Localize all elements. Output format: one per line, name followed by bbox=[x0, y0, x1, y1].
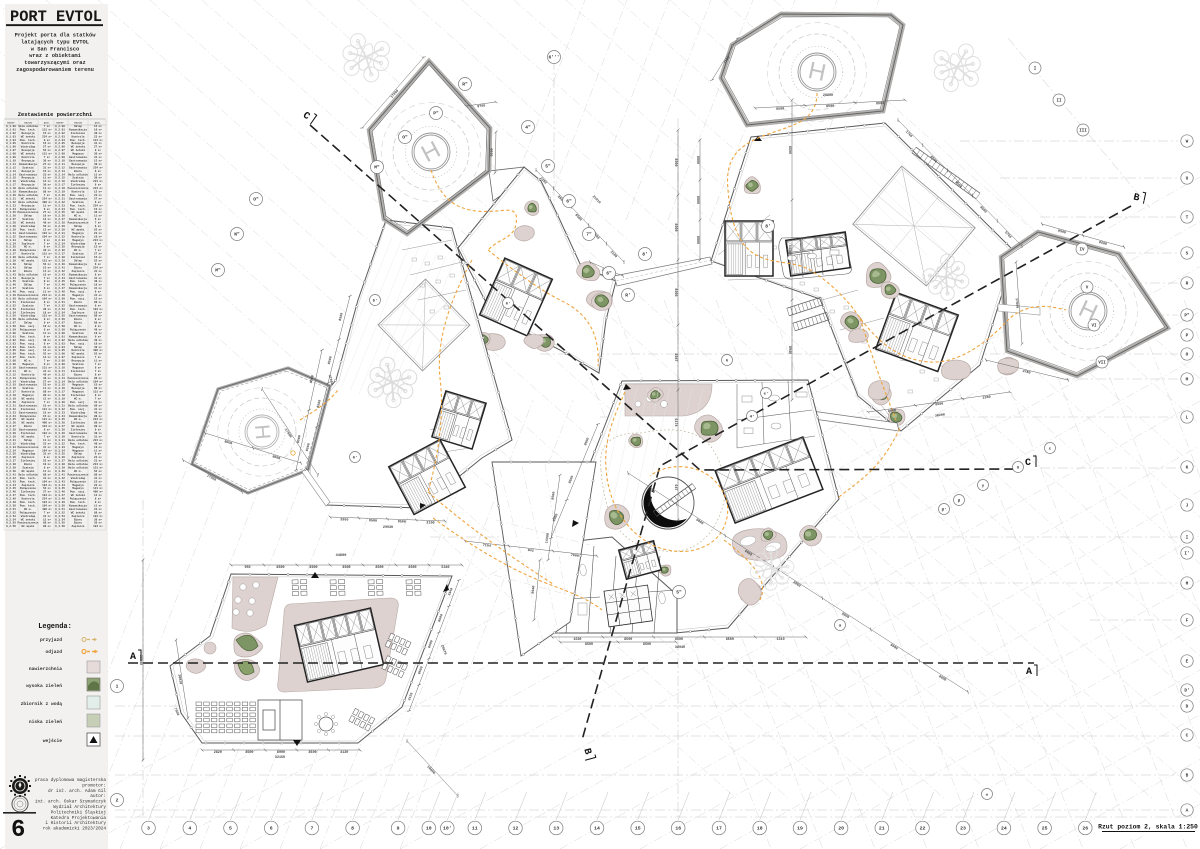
svg-text:6 m²: 6 m² bbox=[95, 169, 102, 173]
svg-text:52 m²: 52 m² bbox=[94, 352, 102, 356]
svg-text:18 m²: 18 m² bbox=[94, 445, 102, 449]
svg-text:3: 3 bbox=[147, 826, 150, 832]
svg-text:48 m²: 48 m² bbox=[94, 345, 102, 349]
svg-text:7": 7" bbox=[586, 232, 592, 238]
svg-text:Hala odlotów: Hala odlotów bbox=[18, 317, 38, 321]
svg-text:19: 19 bbox=[797, 826, 803, 832]
svg-text:8 m²: 8 m² bbox=[44, 466, 51, 470]
svg-text:11 m²: 11 m² bbox=[43, 331, 51, 335]
svg-text:18 m²: 18 m² bbox=[94, 234, 102, 238]
svg-text:Sklep: Sklep bbox=[74, 452, 82, 456]
svg-text:zbiornik z wodą: zbiornik z wodą bbox=[21, 701, 63, 707]
svg-text:131 m²: 131 m² bbox=[93, 466, 103, 470]
svg-text:6 m²: 6 m² bbox=[44, 207, 51, 211]
svg-text:12 m²: 12 m² bbox=[94, 493, 102, 497]
svg-text:88 m²: 88 m² bbox=[43, 393, 51, 397]
svg-text:8 m²: 8 m² bbox=[95, 497, 102, 501]
svg-text:31 m²: 31 m² bbox=[43, 445, 51, 449]
svg-text:A: A bbox=[1026, 667, 1032, 678]
svg-text:11 m²: 11 m² bbox=[94, 504, 102, 508]
svg-text:36 m²: 36 m² bbox=[43, 248, 51, 252]
svg-text:Hala odlotów: Hala odlotów bbox=[68, 459, 88, 463]
svg-text:7 m²: 7 m² bbox=[95, 397, 102, 401]
svg-text:27 m²: 27 m² bbox=[94, 196, 102, 200]
svg-text:36 m²: 36 m² bbox=[94, 210, 102, 214]
svg-text:18 m²: 18 m² bbox=[94, 341, 102, 345]
svg-text:Wiatrołap: Wiatrołap bbox=[71, 476, 86, 480]
svg-text:e': e' bbox=[764, 391, 769, 396]
svg-text:Kontrola: Kontrola bbox=[22, 141, 35, 145]
svg-text:131 m²: 131 m² bbox=[42, 127, 52, 131]
svg-text:Pom. tech.: Pom. tech. bbox=[20, 138, 36, 142]
svg-text:8500: 8500 bbox=[491, 148, 495, 156]
svg-text:5340: 5340 bbox=[441, 566, 449, 570]
svg-text:9 m²: 9 m² bbox=[95, 241, 102, 245]
svg-text:23 m²: 23 m² bbox=[94, 231, 102, 235]
svg-text:L: L bbox=[1186, 416, 1189, 421]
svg-text:6 m²: 6 m² bbox=[95, 200, 102, 204]
svg-text:8 m²: 8 m² bbox=[44, 300, 51, 304]
svg-text:6': 6' bbox=[353, 455, 358, 460]
svg-text:32150: 32150 bbox=[275, 756, 285, 760]
svg-text:WC żeński: WC żeński bbox=[21, 134, 36, 138]
svg-text:9 m²: 9 m² bbox=[44, 238, 51, 242]
svg-text:6 m²: 6 m² bbox=[95, 183, 102, 187]
svg-text:48 m²: 48 m² bbox=[94, 410, 102, 414]
svg-text:9 m²: 9 m² bbox=[44, 321, 51, 325]
svg-text:88 m²: 88 m² bbox=[94, 424, 102, 428]
svg-text:31 m²: 31 m² bbox=[43, 452, 51, 456]
svg-text:Biuro: Biuro bbox=[74, 317, 82, 321]
svg-text:88 m²: 88 m² bbox=[94, 321, 102, 325]
svg-text:Zaplecze: Zaplecze bbox=[72, 310, 85, 314]
svg-text:Wydział Architektury: Wydział Architektury bbox=[53, 805, 106, 810]
svg-text:Pom. tech.: Pom. tech. bbox=[20, 352, 36, 356]
svg-text:Zaplecze: Zaplecze bbox=[22, 455, 35, 459]
svg-text:Sklep: Sklep bbox=[24, 321, 32, 325]
svg-text:Zieleniec: Zieleniec bbox=[21, 431, 36, 435]
svg-text:Pom. socj.: Pom. socj. bbox=[70, 290, 86, 294]
svg-text:PORT EVTOL: PORT EVTOL bbox=[10, 8, 102, 26]
svg-text:Wiatrołap: Wiatrołap bbox=[71, 179, 86, 183]
svg-text:8500: 8500 bbox=[375, 566, 383, 570]
svg-text:27 m²: 27 m² bbox=[94, 145, 102, 149]
svg-text:Komunikacja: Komunikacja bbox=[69, 334, 87, 338]
svg-text:31 m²: 31 m² bbox=[43, 369, 51, 373]
svg-text:224 m²: 224 m² bbox=[42, 134, 52, 138]
svg-text:zagospodarowaniem terenu: zagospodarowaniem terenu bbox=[16, 67, 94, 73]
svg-text:Komunikacja: Komunikacja bbox=[69, 414, 87, 418]
svg-text:Wiatrołap: Wiatrołap bbox=[21, 514, 36, 518]
svg-text:15 m²: 15 m² bbox=[94, 479, 102, 483]
svg-text:18 m²: 18 m² bbox=[43, 324, 51, 328]
svg-text:Hala odlotów: Hala odlotów bbox=[68, 438, 88, 442]
svg-text:Biuro: Biuro bbox=[74, 169, 82, 173]
svg-text:6174: 6174 bbox=[673, 418, 677, 426]
svg-text:1630: 1630 bbox=[573, 638, 581, 642]
svg-text:9 m²: 9 m² bbox=[44, 138, 51, 142]
svg-text:23 m²: 23 m² bbox=[94, 507, 102, 511]
svg-text:8 m²: 8 m² bbox=[95, 393, 102, 397]
svg-text:52 m²: 52 m² bbox=[94, 469, 102, 473]
svg-text:6': 6' bbox=[506, 301, 511, 306]
svg-text:Recepcja: Recepcja bbox=[72, 141, 85, 145]
svg-text:Katedra Projektowania: Katedra Projektowania bbox=[51, 816, 107, 821]
svg-text:Wiatrołap: Wiatrołap bbox=[21, 452, 36, 456]
svg-text:Kontrola: Kontrola bbox=[22, 372, 35, 376]
svg-text:H: H bbox=[1186, 582, 1189, 587]
svg-text:w San Francisco: w San Francisco bbox=[31, 46, 80, 52]
svg-text:Zaplecze: Zaplecze bbox=[72, 269, 85, 273]
svg-text:88 m²: 88 m² bbox=[94, 510, 102, 514]
svg-text:praca dyplomowa magisterska: praca dyplomowa magisterska bbox=[35, 778, 107, 783]
svg-text:odjazd: odjazd bbox=[45, 649, 62, 655]
svg-text:przyjazd: przyjazd bbox=[40, 637, 62, 643]
svg-text:27 m²: 27 m² bbox=[94, 252, 102, 256]
svg-text:18 m²: 18 m² bbox=[43, 214, 51, 218]
svg-text:Recepcja: Recepcja bbox=[22, 176, 35, 180]
svg-text:I: I bbox=[1186, 536, 1189, 541]
svg-text:WC żeński: WC żeński bbox=[21, 517, 36, 521]
svg-text:6 m²: 6 m² bbox=[44, 245, 51, 249]
svg-text:104 m²: 104 m² bbox=[42, 234, 52, 238]
svg-text:WC męski: WC męski bbox=[22, 397, 35, 401]
svg-text:Legenda:: Legenda: bbox=[38, 623, 72, 631]
svg-text:Zaplecze: Zaplecze bbox=[72, 514, 85, 518]
svg-text:Projekt porta dla statków: Projekt porta dla statków bbox=[15, 33, 97, 39]
svg-text:Hala odlotów: Hala odlotów bbox=[18, 297, 38, 301]
svg-text:Recepcja: Recepcja bbox=[22, 159, 35, 163]
svg-text:WC męski: WC męski bbox=[72, 352, 85, 356]
svg-text:6 m²: 6 m² bbox=[95, 290, 102, 294]
svg-text:14380: 14380 bbox=[787, 245, 791, 255]
svg-text:Pom. tech.: Pom. tech. bbox=[20, 345, 36, 349]
svg-text:842: 842 bbox=[527, 549, 534, 554]
svg-text:104 m²: 104 m² bbox=[93, 307, 103, 311]
svg-text:E: E bbox=[1186, 660, 1189, 665]
svg-text:promotor:: promotor: bbox=[82, 783, 106, 788]
svg-text:Kontrola: Kontrola bbox=[72, 134, 85, 138]
svg-text:15 m²: 15 m² bbox=[94, 124, 102, 128]
svg-text:Pom. socj.: Pom. socj. bbox=[70, 341, 86, 345]
svg-text:15 m²: 15 m² bbox=[43, 169, 51, 173]
svg-text:52 m²: 52 m² bbox=[43, 352, 51, 356]
svg-text:Szatnia: Szatnia bbox=[22, 279, 34, 283]
svg-text:Komunikacja: Komunikacja bbox=[69, 286, 87, 290]
svg-text:7 m²: 7 m² bbox=[95, 248, 102, 252]
svg-text:9 m²: 9 m² bbox=[44, 317, 51, 321]
svg-text:8500: 8500 bbox=[309, 566, 317, 570]
svg-text:8500: 8500 bbox=[776, 107, 784, 111]
svg-text:Połączenie: Połączenie bbox=[20, 486, 37, 490]
svg-text:Połączenie: Połączenie bbox=[20, 510, 37, 514]
svg-text:M": M" bbox=[374, 165, 380, 171]
svg-text:52 m²: 52 m² bbox=[43, 486, 51, 490]
svg-text:11 m²: 11 m² bbox=[43, 469, 51, 473]
svg-text:7 m²: 7 m² bbox=[44, 241, 51, 245]
svg-text:wysoka zieleń: wysoka zieleń bbox=[26, 683, 62, 689]
svg-text:7 m²: 7 m² bbox=[44, 276, 51, 280]
svg-text:Sklep: Sklep bbox=[24, 238, 32, 242]
svg-text:1310: 1310 bbox=[777, 638, 785, 642]
svg-text:O": O" bbox=[253, 197, 259, 203]
svg-text:Komunikacja: Komunikacja bbox=[19, 162, 37, 166]
svg-text:7 m²: 7 m² bbox=[95, 362, 102, 366]
svg-text:Hala odlotów: Hala odlotów bbox=[18, 124, 38, 128]
svg-text:8000: 8000 bbox=[673, 223, 677, 231]
svg-text:W: W bbox=[1186, 140, 1189, 145]
svg-text:Sklep: Sklep bbox=[24, 438, 32, 442]
svg-text:131 m²: 131 m² bbox=[42, 314, 52, 318]
svg-text:Recepcja: Recepcja bbox=[72, 245, 85, 249]
svg-text:7 m²: 7 m² bbox=[95, 369, 102, 373]
svg-text:23 m²: 23 m² bbox=[94, 193, 102, 197]
svg-text:Gastronomia: Gastronomia bbox=[69, 155, 87, 159]
svg-text:Zaplecze: Zaplecze bbox=[22, 241, 35, 245]
svg-text:Gastronomia: Gastronomia bbox=[19, 231, 37, 235]
svg-text:U: U bbox=[1186, 177, 1189, 182]
svg-text:Pom. tech.: Pom. tech. bbox=[20, 334, 36, 338]
svg-text:224 m²: 224 m² bbox=[93, 238, 103, 242]
svg-text:11 m²: 11 m² bbox=[43, 290, 51, 294]
svg-text:104 m²: 104 m² bbox=[93, 514, 103, 518]
svg-text:8500: 8500 bbox=[726, 638, 734, 642]
svg-text:Połączenie: Połączenie bbox=[20, 376, 37, 380]
svg-text:24: 24 bbox=[1001, 826, 1007, 832]
svg-text:6 m²: 6 m² bbox=[44, 328, 51, 332]
svg-text:Połączenie: Połączenie bbox=[20, 248, 37, 252]
svg-text:WC męski: WC męski bbox=[22, 417, 35, 421]
svg-text:15 m²: 15 m² bbox=[94, 207, 102, 211]
svg-text:23: 23 bbox=[960, 826, 966, 832]
svg-text:12 m²: 12 m² bbox=[43, 397, 51, 401]
svg-text:wejście: wejście bbox=[43, 738, 63, 744]
svg-text:Wiatrołap: Wiatrołap bbox=[21, 224, 36, 228]
svg-text:Szatnia: Szatnia bbox=[72, 252, 84, 256]
svg-text:27 m²: 27 m² bbox=[43, 145, 51, 149]
svg-text:8 m²: 8 m² bbox=[95, 372, 102, 376]
svg-text:Szatnia: Szatnia bbox=[72, 176, 84, 180]
svg-text:Gastronomia: Gastronomia bbox=[69, 303, 87, 307]
svg-text:K: K bbox=[1186, 466, 1189, 471]
svg-text:48 m²: 48 m² bbox=[94, 131, 102, 135]
svg-text:44800: 44800 bbox=[336, 554, 347, 558]
svg-text:7 m²: 7 m² bbox=[44, 400, 51, 404]
svg-text:Pomieszczenie: Pomieszczenie bbox=[18, 445, 39, 449]
svg-text:WC męski: WC męski bbox=[72, 210, 85, 214]
svg-text:i Historii Architektury: i Historii Architektury bbox=[45, 821, 106, 826]
svg-text:17000: 17000 bbox=[1014, 298, 1019, 308]
svg-text:Pom. tech.: Pom. tech. bbox=[70, 307, 86, 311]
svg-text:14: 14 bbox=[594, 826, 600, 832]
svg-text:8 m²: 8 m² bbox=[95, 303, 102, 307]
svg-text:31 m²: 31 m² bbox=[43, 345, 51, 349]
svg-text:2100: 2100 bbox=[426, 521, 434, 525]
svg-text:WC żeński: WC żeński bbox=[71, 493, 86, 497]
svg-text:406 m²: 406 m² bbox=[93, 490, 103, 494]
svg-text:WC żeński: WC żeński bbox=[21, 196, 36, 200]
svg-text:6 m²: 6 m² bbox=[44, 428, 51, 432]
svg-text:Kontrola: Kontrola bbox=[72, 234, 85, 238]
svg-text:Pom. socj.: Pom. socj. bbox=[70, 400, 86, 404]
svg-text:Komunikacja: Komunikacja bbox=[69, 272, 87, 276]
svg-text:8000: 8000 bbox=[695, 156, 699, 164]
svg-text:12 m²: 12 m² bbox=[94, 190, 102, 194]
svg-text:7: 7 bbox=[310, 826, 313, 832]
svg-text:31 m²: 31 m² bbox=[94, 293, 102, 297]
svg-text:131 m²: 131 m² bbox=[42, 252, 52, 256]
svg-text:WC żeński: WC żeński bbox=[71, 148, 86, 152]
svg-text:104 m²: 104 m² bbox=[42, 483, 52, 487]
svg-text:Pom. tech.: Pom. tech. bbox=[20, 355, 36, 359]
svg-text:88 m²: 88 m² bbox=[94, 386, 102, 390]
svg-text:11 m²: 11 m² bbox=[43, 269, 51, 273]
svg-text:48 m²: 48 m² bbox=[94, 162, 102, 166]
svg-text:9 m²: 9 m² bbox=[44, 334, 51, 338]
svg-text:Kontrola: Kontrola bbox=[72, 348, 85, 352]
svg-text:Połączenie: Połączenie bbox=[20, 328, 37, 332]
svg-text:dr inż. arch. Adam Gil: dr inż. arch. Adam Gil bbox=[48, 789, 106, 794]
svg-text:11 m²: 11 m² bbox=[94, 172, 102, 176]
svg-text:52 m²: 52 m² bbox=[43, 262, 51, 266]
svg-text:8500: 8500 bbox=[398, 520, 406, 524]
svg-text:Biuro: Biuro bbox=[74, 265, 82, 269]
svg-text:Pom. tech.: Pom. tech. bbox=[70, 500, 86, 504]
svg-text:Połączenie: Połączenie bbox=[20, 207, 37, 211]
svg-text:7 m²: 7 m² bbox=[44, 359, 51, 363]
svg-text:Hala odlotów: Hala odlotów bbox=[18, 193, 38, 197]
svg-text:7 m²: 7 m² bbox=[44, 510, 51, 514]
svg-text:Pom. tech.: Pom. tech. bbox=[70, 203, 86, 207]
svg-text:2950: 2950 bbox=[340, 518, 348, 522]
svg-text:Hala odlotów: Hala odlotów bbox=[68, 403, 88, 407]
svg-text:Gastronomia: Gastronomia bbox=[69, 431, 87, 435]
svg-text:7 m²: 7 m² bbox=[95, 355, 102, 359]
svg-text:Zieleniec: Zieleniec bbox=[71, 255, 86, 259]
svg-text:inż. arch. Oskar Szymańczyk: inż. arch. Oskar Szymańczyk bbox=[35, 800, 107, 805]
svg-text:II: II bbox=[1056, 100, 1062, 104]
svg-text:9: 9 bbox=[397, 826, 400, 832]
svg-text:A: A bbox=[130, 652, 136, 663]
svg-text:36 m²: 36 m² bbox=[94, 152, 102, 156]
svg-text:8500: 8500 bbox=[826, 105, 834, 109]
svg-text:11 m²: 11 m² bbox=[94, 359, 102, 363]
svg-text:224 m²: 224 m² bbox=[93, 438, 103, 442]
svg-text:Biuro: Biuro bbox=[24, 462, 32, 466]
svg-text:52 m²: 52 m² bbox=[94, 259, 102, 263]
svg-text:6 m²: 6 m² bbox=[44, 362, 51, 366]
svg-text:Pom. socj.: Pom. socj. bbox=[20, 290, 36, 294]
svg-text:8500: 8500 bbox=[408, 566, 416, 570]
svg-text:12 m²: 12 m² bbox=[43, 228, 51, 232]
svg-text:8 m²: 8 m² bbox=[95, 366, 102, 370]
svg-text:18 m²: 18 m² bbox=[43, 462, 51, 466]
svg-text:H: H bbox=[250, 423, 274, 440]
svg-text:27 m²: 27 m² bbox=[43, 490, 51, 494]
svg-text:7 m²: 7 m² bbox=[44, 255, 51, 259]
svg-text:23 m²: 23 m² bbox=[94, 455, 102, 459]
svg-text:10': 10' bbox=[443, 826, 452, 832]
svg-text:Gastronomia: Gastronomia bbox=[69, 165, 87, 169]
svg-text:104 m²: 104 m² bbox=[93, 379, 103, 383]
svg-text:F: F bbox=[1186, 619, 1189, 624]
svg-text:7 m²: 7 m² bbox=[44, 193, 51, 197]
svg-text:15 m²: 15 m² bbox=[43, 265, 51, 269]
svg-text:26: 26 bbox=[1082, 826, 1088, 832]
svg-text:6: 6 bbox=[270, 826, 273, 832]
svg-text:224 m²: 224 m² bbox=[93, 186, 103, 190]
svg-text:4: 4 bbox=[188, 826, 191, 832]
svg-text:Zieleniec: Zieleniec bbox=[21, 307, 36, 311]
svg-text:Pom. socj.: Pom. socj. bbox=[70, 297, 86, 301]
svg-text:5": 5" bbox=[676, 590, 682, 596]
svg-text:8500: 8500 bbox=[309, 751, 317, 755]
svg-text:104 m²: 104 m² bbox=[42, 231, 52, 235]
svg-text:WC męski: WC męski bbox=[72, 228, 85, 232]
svg-text:6": 6" bbox=[566, 199, 572, 205]
svg-text:7 m²: 7 m² bbox=[44, 435, 51, 439]
svg-text:Wiatrołap: Wiatrołap bbox=[71, 241, 86, 245]
svg-text:406 m²: 406 m² bbox=[42, 507, 52, 511]
svg-text:22: 22 bbox=[920, 826, 926, 832]
svg-text:647: 647 bbox=[673, 484, 677, 490]
svg-text:224 m²: 224 m² bbox=[93, 165, 103, 169]
svg-text:224 m²: 224 m² bbox=[42, 196, 52, 200]
svg-text:Połączenie: Połączenie bbox=[20, 414, 37, 418]
svg-text:M": M" bbox=[215, 268, 221, 274]
svg-text:18 m²: 18 m² bbox=[94, 283, 102, 287]
svg-text:niska zieleń: niska zieleń bbox=[29, 719, 62, 725]
svg-text:36 m²: 36 m² bbox=[94, 176, 102, 180]
svg-text:88 m²: 88 m² bbox=[43, 190, 51, 194]
svg-text:Komunikacja: Komunikacja bbox=[69, 262, 87, 266]
svg-text:8500: 8500 bbox=[624, 638, 632, 642]
svg-text:2: 2 bbox=[116, 798, 119, 804]
svg-text:P: P bbox=[1186, 334, 1189, 339]
svg-text:Gastronomia: Gastronomia bbox=[19, 366, 37, 370]
svg-text:15 m²: 15 m² bbox=[43, 403, 51, 407]
svg-text:WC żeński: WC żeński bbox=[71, 510, 86, 514]
svg-text:18 m²: 18 m² bbox=[94, 331, 102, 335]
svg-text:WC męski: WC męski bbox=[22, 524, 35, 528]
svg-text:23 m²: 23 m² bbox=[94, 459, 102, 463]
svg-text:Hala odlotów: Hala odlotów bbox=[18, 255, 38, 259]
svg-text:T: T bbox=[1186, 216, 1189, 221]
svg-text:48 m²: 48 m² bbox=[94, 338, 102, 342]
svg-text:15 m²: 15 m² bbox=[94, 255, 102, 259]
svg-text:Zieleniec: Zieleniec bbox=[21, 459, 36, 463]
svg-text:Politechniki Śląskiej: Politechniki Śląskiej bbox=[51, 810, 106, 815]
svg-text:6 m²: 6 m² bbox=[95, 452, 102, 456]
svg-text:Komunikacja: Komunikacja bbox=[69, 504, 87, 508]
svg-text:Hala odlotów: Hala odlotów bbox=[18, 200, 38, 204]
svg-text:B: B bbox=[1186, 774, 1189, 779]
svg-text:Zaplecze: Zaplecze bbox=[22, 483, 35, 487]
svg-text:8500: 8500 bbox=[585, 643, 593, 647]
svg-text:131 m²: 131 m² bbox=[42, 417, 52, 421]
svg-text:Szatnia: Szatnia bbox=[22, 165, 34, 169]
svg-text:P": P" bbox=[433, 111, 439, 117]
svg-text:36 m²: 36 m² bbox=[43, 307, 51, 311]
svg-text:9 m²: 9 m² bbox=[95, 500, 102, 504]
svg-text:8 m²: 8 m² bbox=[44, 341, 51, 345]
svg-text:88 m²: 88 m² bbox=[43, 524, 51, 528]
svg-text:Biuro: Biuro bbox=[24, 269, 32, 273]
svg-text:Gastronomia: Gastronomia bbox=[69, 276, 87, 280]
svg-text:31 m²: 31 m² bbox=[43, 514, 51, 518]
svg-text:Biuro: Biuro bbox=[74, 321, 82, 325]
svg-text:Kontrola: Kontrola bbox=[22, 497, 35, 501]
